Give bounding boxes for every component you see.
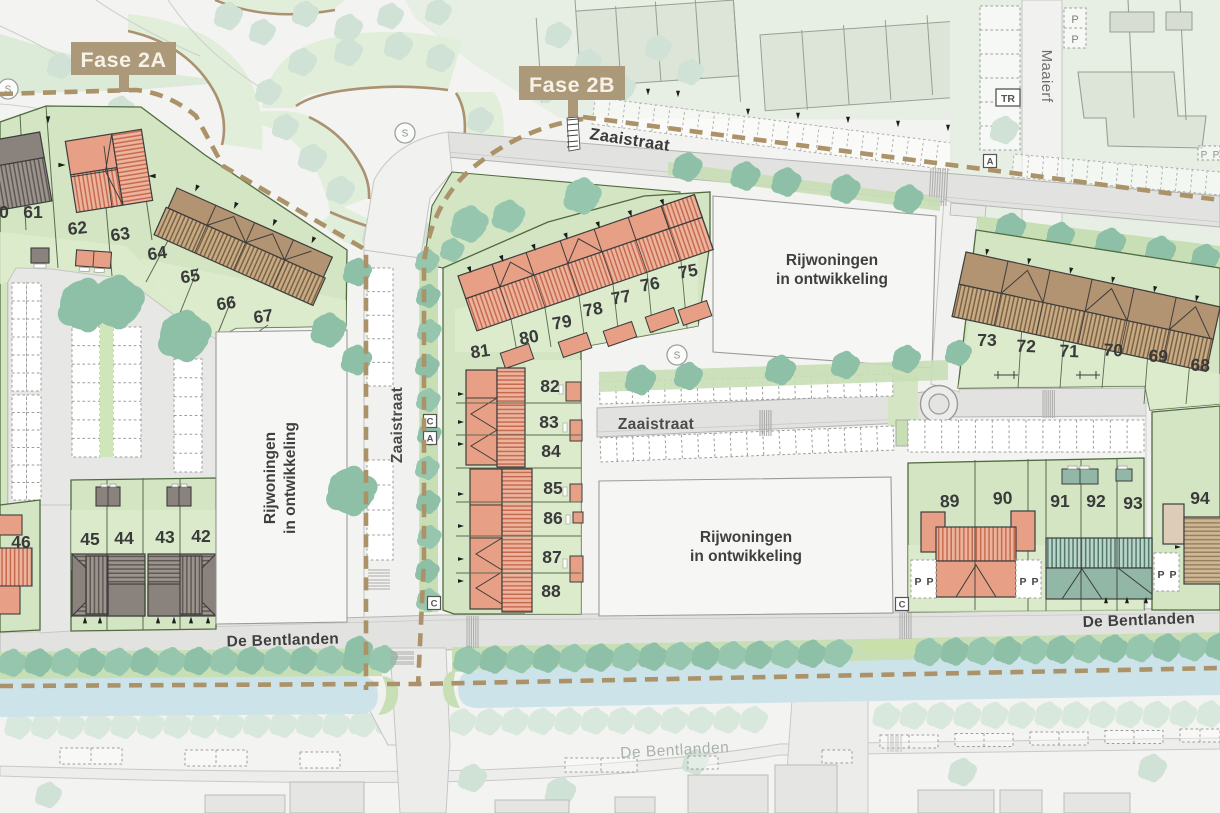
svg-text:76: 76 — [639, 273, 662, 296]
svg-text:S: S — [402, 129, 409, 140]
svg-text:80: 80 — [518, 326, 541, 349]
svg-text:73: 73 — [977, 330, 997, 350]
svg-text:TR: TR — [1001, 93, 1015, 105]
svg-text:P: P — [1019, 576, 1026, 588]
svg-text:91: 91 — [1050, 491, 1070, 511]
svg-text:C: C — [899, 600, 906, 611]
svg-text:77: 77 — [610, 286, 633, 309]
svg-text:Zaaistraat: Zaaistraat — [389, 387, 406, 463]
svg-text:67: 67 — [252, 305, 274, 328]
svg-text:C: C — [427, 417, 434, 428]
svg-text:in ontwikkeling: in ontwikkeling — [776, 271, 888, 288]
svg-text:in ontwikkeling: in ontwikkeling — [282, 422, 299, 534]
svg-text:42: 42 — [191, 526, 211, 546]
svg-text:Rijwoningen: Rijwoningen — [700, 529, 792, 546]
svg-text:62: 62 — [67, 217, 89, 239]
svg-text:61: 61 — [23, 202, 43, 222]
svg-text:84: 84 — [541, 441, 561, 461]
svg-text:Rijwoningen: Rijwoningen — [262, 432, 279, 524]
svg-text:Fase 2A: Fase 2A — [81, 48, 167, 72]
svg-text:90: 90 — [992, 487, 1013, 508]
svg-text:P: P — [914, 576, 921, 588]
svg-text:63: 63 — [109, 223, 131, 246]
svg-text:71: 71 — [1059, 341, 1079, 362]
svg-text:De Bentlanden: De Bentlanden — [226, 631, 339, 651]
svg-text:45: 45 — [80, 529, 100, 549]
svg-text:P: P — [1169, 569, 1176, 581]
svg-text:P: P — [1071, 14, 1078, 26]
svg-text:66: 66 — [215, 292, 237, 315]
svg-text:93: 93 — [1123, 493, 1143, 513]
svg-text:A: A — [987, 157, 994, 168]
svg-text:Maaierf: Maaierf — [1038, 50, 1055, 103]
svg-text:88: 88 — [541, 581, 561, 601]
svg-text:83: 83 — [539, 412, 559, 432]
svg-text:46: 46 — [11, 532, 31, 552]
svg-text:64: 64 — [146, 242, 168, 265]
svg-text:81: 81 — [469, 340, 491, 363]
svg-text:C: C — [431, 599, 438, 610]
svg-text:92: 92 — [1086, 491, 1106, 511]
svg-text:79: 79 — [551, 311, 574, 334]
svg-text:65: 65 — [179, 265, 201, 288]
svg-text:P: P — [1201, 150, 1208, 161]
svg-text:43: 43 — [155, 527, 175, 547]
svg-text:68: 68 — [1190, 355, 1211, 376]
svg-text:0: 0 — [0, 202, 9, 222]
svg-text:S: S — [674, 351, 681, 362]
svg-text:P: P — [926, 576, 933, 588]
svg-text:Rijwoningen: Rijwoningen — [786, 252, 878, 269]
svg-text:Fase 2B: Fase 2B — [529, 73, 615, 97]
svg-text:P: P — [1157, 569, 1164, 581]
svg-text:A: A — [427, 434, 434, 445]
svg-text:89: 89 — [939, 490, 960, 511]
svg-text:78: 78 — [582, 298, 605, 321]
svg-text:P: P — [1071, 34, 1078, 46]
svg-text:82: 82 — [540, 376, 560, 396]
svg-text:87: 87 — [542, 547, 561, 567]
svg-text:Zaaistraat: Zaaistraat — [618, 416, 694, 433]
svg-text:75: 75 — [677, 260, 700, 283]
svg-text:in ontwikkeling: in ontwikkeling — [690, 548, 802, 565]
svg-text:P: P — [1031, 576, 1038, 588]
svg-text:94: 94 — [1190, 488, 1210, 508]
svg-text:86: 86 — [543, 508, 563, 528]
svg-text:44: 44 — [114, 528, 134, 548]
svg-text:69: 69 — [1148, 346, 1169, 367]
svg-text:70: 70 — [1103, 340, 1124, 361]
svg-text:85: 85 — [543, 478, 563, 498]
svg-text:P: P — [1213, 150, 1220, 161]
svg-text:72: 72 — [1016, 336, 1036, 357]
